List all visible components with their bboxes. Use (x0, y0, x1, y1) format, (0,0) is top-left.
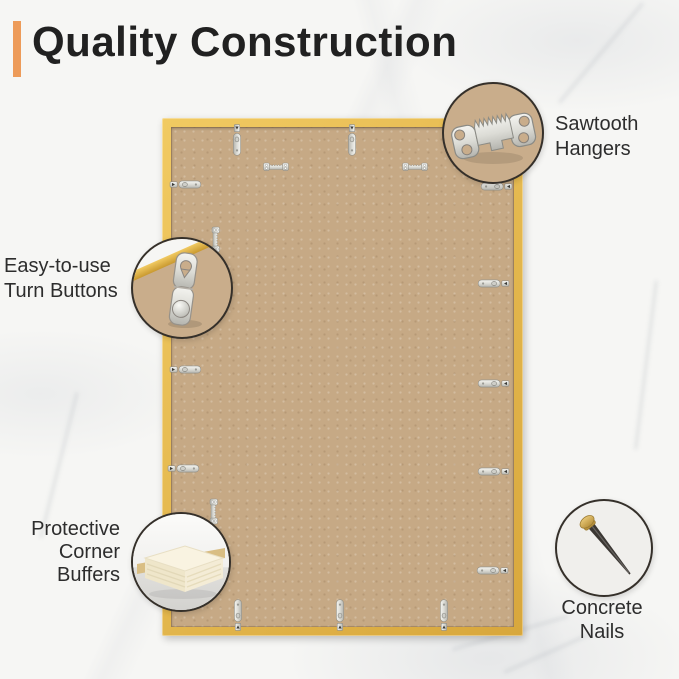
title-accent-bar (13, 21, 21, 77)
turn-buttons-label: Easy-to-use Turn Buttons (4, 254, 118, 304)
turn-button-hardware (169, 364, 203, 375)
concrete-nail-icon (557, 501, 651, 595)
sawtooth-hangers-callout (442, 82, 544, 184)
turn-button-hardware (476, 466, 510, 477)
sawtooth-hangers-label: Sawtooth Hangers (555, 112, 638, 161)
corner-buffer-icon (133, 514, 229, 610)
sawtooth-hanger-hardware (402, 160, 428, 173)
turn-button-hardware (167, 463, 201, 474)
marble-vein (635, 281, 658, 450)
turn-button-hardware (476, 278, 510, 289)
sawtooth-hanger-hardware (263, 160, 289, 173)
turn-buttons-callout (131, 237, 233, 339)
turn-button-hardware (475, 565, 509, 576)
page-title: Quality Construction (32, 14, 457, 70)
corner-buffers-callout (131, 512, 231, 612)
marble-vein (40, 392, 78, 538)
concrete-nails-callout (555, 499, 653, 597)
turn-button-hardware (476, 378, 510, 389)
turn-button-hardware (347, 124, 358, 158)
marble-background: Quality Construction (0, 0, 679, 679)
turn-button-hardware (439, 598, 450, 632)
turn-button-hardware (169, 179, 203, 190)
marble-vein (558, 3, 643, 104)
turn-button-hardware (335, 598, 346, 632)
concrete-nails-label: Concrete Nails (527, 596, 677, 644)
turn-button-hardware (233, 598, 244, 632)
turn-button-icon (133, 239, 231, 337)
sawtooth-hanger-icon (444, 84, 542, 182)
corner-buffers-label: Protective Corner Buffers (6, 518, 120, 587)
turn-button-hardware (232, 124, 243, 158)
